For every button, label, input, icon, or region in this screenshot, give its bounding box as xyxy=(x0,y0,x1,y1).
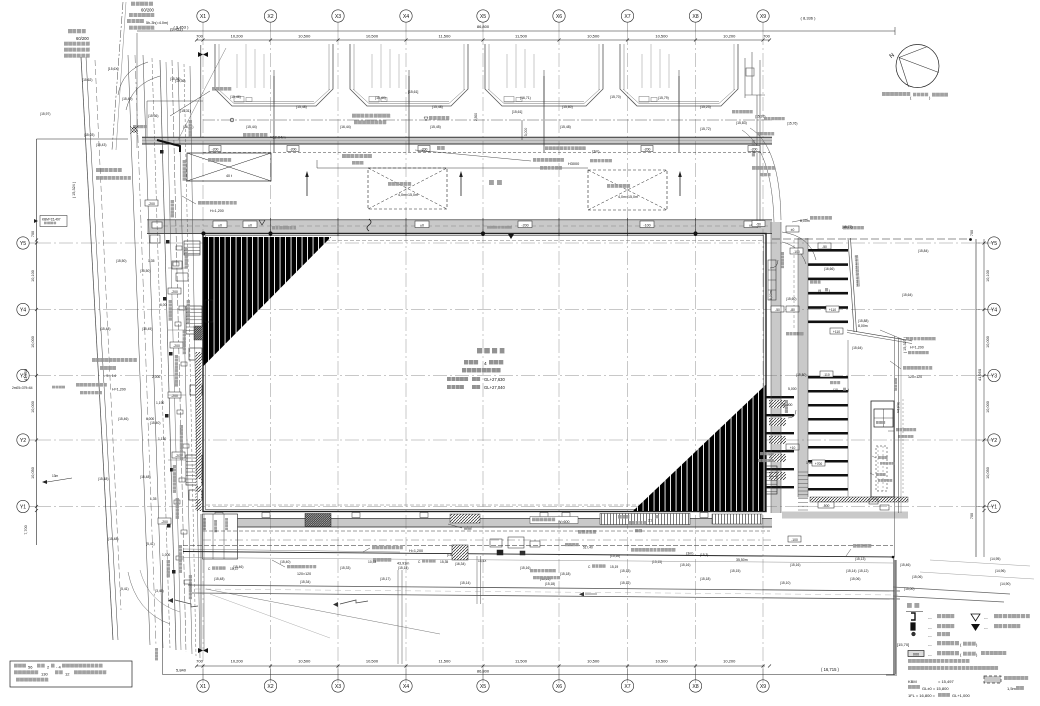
svg-text:- 4: - 4 xyxy=(56,665,61,670)
svg-text:10,500: 10,500 xyxy=(655,659,668,664)
svg-text:(15,80): (15,80) xyxy=(796,373,806,377)
svg-text:X6: X6 xyxy=(556,14,562,20)
svg-text:[15,6X]: [15,6X] xyxy=(108,67,119,71)
svg-text:(15,76): (15,76) xyxy=(787,122,797,126)
svg-text:(15,50): (15,50) xyxy=(140,269,150,273)
svg-text:(15,64): (15,64) xyxy=(852,346,862,350)
svg-text:5h-3h(=4.0m): 5h-3h(=4.0m) xyxy=(146,21,168,25)
svg-text:(15,48): (15,48) xyxy=(560,125,571,129)
svg-text:-500: -500 xyxy=(823,504,830,508)
svg-text:X9: X9 xyxy=(760,14,766,20)
svg-text:(16,71): (16,71) xyxy=(520,96,531,100)
svg-text:(15,15): (15,15) xyxy=(730,569,740,573)
svg-text:6,00: 6,00 xyxy=(160,303,167,307)
svg-text:(15,14): (15,14) xyxy=(398,566,408,570)
svg-text:10,500: 10,500 xyxy=(366,659,379,664)
svg-text:Y1: Y1 xyxy=(20,505,26,511)
svg-text:(15,43): (15,43) xyxy=(96,143,106,147)
svg-text:X3: X3 xyxy=(335,14,341,20)
svg-text:2,500: 2,500 xyxy=(474,113,478,121)
svg-text:43,91m: 43,91m xyxy=(397,562,409,566)
svg-text:120×120: 120×120 xyxy=(297,572,311,576)
svg-text:34,61m: 34,61m xyxy=(896,402,900,413)
svg-text:10,200: 10,200 xyxy=(723,659,736,664)
svg-text:2m05=379=64: 2m05=379=64 xyxy=(12,386,33,390)
svg-text:8,00m: 8,00m xyxy=(800,219,810,223)
svg-text:10,050: 10,050 xyxy=(986,467,990,479)
svg-text:X1: X1 xyxy=(200,684,206,690)
svg-text:(15,48): (15,48) xyxy=(98,477,108,481)
svg-text:41,950: 41,950 xyxy=(23,368,28,381)
svg-text:11,500: 11,500 xyxy=(439,34,452,39)
svg-text:H=1,200: H=1,200 xyxy=(210,209,224,213)
svg-text:( 16,715 ): ( 16,715 ) xyxy=(821,667,840,672)
svg-text:(3m): (3m) xyxy=(686,552,693,556)
svg-text:(15,14): (15,14) xyxy=(846,569,856,573)
svg-text:H3000: H3000 xyxy=(568,162,579,166)
svg-text:120×120: 120×120 xyxy=(908,375,922,379)
svg-text:W=600: W=600 xyxy=(558,520,570,524)
svg-text:(15,44): (15,44) xyxy=(246,125,257,129)
svg-text:10,53: 10,53 xyxy=(368,560,376,564)
svg-text:(15,40): (15,40) xyxy=(150,421,160,425)
svg-text:(15,48): (15,48) xyxy=(108,537,118,541)
svg-text:(15,03): (15,03) xyxy=(84,133,94,137)
svg-text:(15,70): (15,70) xyxy=(610,95,621,99)
svg-text:X5: X5 xyxy=(480,14,486,20)
svg-text:(15,46): (15,46) xyxy=(900,563,910,567)
svg-text:(15,00): (15,00) xyxy=(904,587,914,591)
svg-text:( 8,336 ): ( 8,336 ) xyxy=(801,16,817,21)
svg-text:±0: ±0 xyxy=(791,228,795,232)
svg-text:(15,18): (15,18) xyxy=(545,582,555,586)
svg-text:1,5m: 1,5m xyxy=(1007,686,1017,691)
svg-text:(16,34): (16,34) xyxy=(455,562,465,566)
svg-text:X9: X9 xyxy=(760,684,766,690)
svg-text:-200: -200 xyxy=(171,290,178,294)
svg-text:(5,41): (5,41) xyxy=(146,542,155,546)
svg-text:10,000: 10,000 xyxy=(31,336,35,348)
svg-text:700: 700 xyxy=(970,513,974,519)
svg-text:(15,60): (15,60) xyxy=(786,297,796,301)
svg-text:10,500: 10,500 xyxy=(366,34,379,39)
svg-text:H=1,200: H=1,200 xyxy=(910,346,924,350)
svg-text:(15,64): (15,64) xyxy=(902,293,912,297)
svg-text:-50: -50 xyxy=(756,222,761,226)
svg-text:-100: -100 xyxy=(791,538,798,542)
svg-text:10,100: 10,100 xyxy=(986,270,990,282)
svg-text:(15,88): (15,88) xyxy=(858,319,868,323)
svg-text:+10: +10 xyxy=(790,446,796,450)
svg-text:(15,33): (15,33) xyxy=(340,566,350,570)
svg-text:+110: +110 xyxy=(833,330,840,334)
svg-text:(15,31): (15,31) xyxy=(180,109,191,113)
svg-text:(15,17): (15,17) xyxy=(380,577,390,581)
svg-text:10,000: 10,000 xyxy=(31,401,35,413)
svg-text:(3,45): (3,45) xyxy=(155,589,164,593)
svg-text:X8: X8 xyxy=(692,684,698,690)
svg-text:(15,93): (15,93) xyxy=(755,115,765,119)
svg-text:Y5: Y5 xyxy=(991,241,997,247)
svg-text:12: 12 xyxy=(65,672,70,677)
svg-text:5,840: 5,840 xyxy=(176,668,187,673)
svg-text:700: 700 xyxy=(970,230,974,236)
svg-text:X4: X4 xyxy=(403,684,409,690)
svg-text:[15,61]: [15,61] xyxy=(512,110,522,114)
svg-text:±0: ±0 xyxy=(218,223,222,227)
svg-text:GL+27,040: GL+27,040 xyxy=(484,385,506,390)
svg-text:21: 21 xyxy=(648,519,652,523)
svg-text:X3: X3 xyxy=(335,684,341,690)
svg-text:(15,80): (15,80) xyxy=(562,105,573,109)
svg-text:4: 4 xyxy=(484,361,487,367)
svg-text:Y4: Y4 xyxy=(991,308,997,314)
svg-text:(15,18): (15,18) xyxy=(560,572,570,576)
svg-text:X5: X5 xyxy=(480,684,486,690)
svg-text:(9,453): (9,453) xyxy=(170,27,183,32)
svg-text:X6: X6 xyxy=(556,684,562,690)
svg-text:(15,46): (15,46) xyxy=(230,95,241,99)
svg-text:(15,77): (15,77) xyxy=(842,225,852,229)
svg-text:(15,12): (15,12) xyxy=(620,581,630,585)
svg-text:= 15,497: = 15,497 xyxy=(938,679,954,684)
svg-text:11,500: 11,500 xyxy=(439,659,452,664)
svg-text:(15,34): (15,34) xyxy=(300,580,310,584)
svg-text:1,130: 1,130 xyxy=(158,437,166,441)
svg-text:10,500: 10,500 xyxy=(298,34,311,39)
svg-text:6,000: 6,000 xyxy=(146,417,154,421)
svg-text:(15,83): (15,83) xyxy=(736,121,747,125)
svg-text:(15,62): (15,62) xyxy=(82,78,92,82)
svg-text:10,000: 10,000 xyxy=(986,401,990,413)
svg-text:60/200: 60/200 xyxy=(141,8,154,13)
svg-text:(15,46): (15,46) xyxy=(118,417,128,421)
svg-text:(15,23): (15,23) xyxy=(700,105,711,109)
svg-text:(14,96): (14,96) xyxy=(995,569,1005,573)
svg-text:700: 700 xyxy=(31,231,35,237)
svg-text:86,800: 86,800 xyxy=(477,24,490,29)
svg-text:4,0m×15,0m: 4,0m×15,0m xyxy=(398,193,418,197)
svg-text:(15,13): (15,13) xyxy=(620,569,630,573)
svg-text:(15,36): (15,36) xyxy=(148,114,158,118)
svg-text:1,190: 1,190 xyxy=(156,401,164,405)
svg-text:±0: ±0 xyxy=(248,223,252,227)
svg-text:(3m): (3m) xyxy=(592,150,599,154)
svg-text:-200: -200 xyxy=(290,147,297,151)
svg-text:(5,41): (5,41) xyxy=(120,587,129,591)
svg-text:GL+1,000: GL+1,000 xyxy=(952,693,970,698)
svg-text:(15,48): (15,48) xyxy=(214,577,224,581)
svg-text:3,000: 3,000 xyxy=(524,128,528,137)
svg-text:-200: -200 xyxy=(148,202,155,206)
svg-text:31,000: 31,000 xyxy=(782,403,792,407)
svg-text:-100: -100 xyxy=(643,223,650,227)
svg-text:15,19: 15,19 xyxy=(610,565,618,569)
svg-text:(15,18): (15,18) xyxy=(700,577,710,581)
svg-text:-50: -50 xyxy=(822,245,827,249)
svg-text:+110: +110 xyxy=(829,308,836,312)
svg-text:(15,14): (15,14) xyxy=(460,581,470,585)
svg-text:H=1,200: H=1,200 xyxy=(409,549,423,553)
svg-text:-200: -200 xyxy=(171,394,178,398)
svg-text:10,200: 10,200 xyxy=(231,659,244,664)
svg-text:(15,40): (15,40) xyxy=(280,560,290,564)
svg-text:(14,95): (14,95) xyxy=(990,557,1000,561)
svg-text:X1: X1 xyxy=(200,14,206,20)
svg-text:-200: -200 xyxy=(173,344,180,348)
svg-text:(15,79): (15,79) xyxy=(658,96,669,100)
svg-text:(15,06): (15,06) xyxy=(850,577,860,581)
svg-text:Y2: Y2 xyxy=(991,438,997,444)
svg-text:60/200: 60/200 xyxy=(76,36,89,41)
svg-text:X2: X2 xyxy=(267,14,273,20)
svg-text:GL±0 = 15,800: GL±0 = 15,800 xyxy=(922,686,949,691)
svg-text:11,500: 11,500 xyxy=(515,659,528,664)
svg-text:2,000: 2,000 xyxy=(152,375,160,379)
svg-text:(15,84): (15,84) xyxy=(918,249,928,253)
svg-text:X7: X7 xyxy=(624,14,630,20)
svg-text:000: 000 xyxy=(913,653,919,657)
svg-text:-200: -200 xyxy=(212,147,219,151)
svg-text:11,500: 11,500 xyxy=(515,34,528,39)
svg-text:H=1,200: H=1,200 xyxy=(112,388,126,392)
svg-text:-50: -50 xyxy=(775,308,780,312)
svg-text:10,050: 10,050 xyxy=(31,467,35,479)
svg-text:KBM: KBM xyxy=(908,679,917,684)
svg-text:(15,06): (15,06) xyxy=(912,575,922,579)
svg-text:(15,46): (15,46) xyxy=(233,565,243,569)
svg-text:51?,40: 51?,40 xyxy=(583,546,593,550)
svg-text:X8: X8 xyxy=(692,14,698,20)
svg-text:GL+27,630: GL+27,630 xyxy=(484,377,506,382)
svg-text:Y1: Y1 xyxy=(991,505,997,511)
svg-text:130: 130 xyxy=(41,672,48,677)
svg-text:10,200: 10,200 xyxy=(723,34,736,39)
svg-text:Y5: Y5 xyxy=(20,241,26,247)
svg-text:10,500: 10,500 xyxy=(587,659,600,664)
svg-text:( 15,324 ): ( 15,324 ) xyxy=(72,181,76,198)
svg-text:700: 700 xyxy=(196,34,203,39)
svg-text:15,35: 15,35 xyxy=(440,560,448,564)
svg-text:): ) xyxy=(829,289,830,293)
svg-text:(15,48): (15,48) xyxy=(140,475,150,479)
svg-text:13m: 13m xyxy=(52,474,59,478)
svg-text:(14,90): (14,90) xyxy=(1000,582,1010,586)
svg-text:40 t: 40 t xyxy=(226,174,232,178)
svg-text:Y2: Y2 xyxy=(20,438,26,444)
svg-text:-200: -200 xyxy=(644,147,651,151)
svg-text:700: 700 xyxy=(196,659,203,664)
svg-text:1,35: 1,35 xyxy=(150,497,157,501)
svg-text:(15,12): (15,12) xyxy=(858,569,868,573)
svg-text:X2: X2 xyxy=(267,684,273,690)
svg-text:X4: X4 xyxy=(403,14,409,20)
svg-text:1FL = 16,800 =: 1FL = 16,800 = xyxy=(908,693,936,698)
svg-text:(15,48): (15,48) xyxy=(432,105,443,109)
svg-text:Y3: Y3 xyxy=(991,374,997,380)
svg-text:-80: -80 xyxy=(790,308,795,312)
svg-text:7,700: 7,700 xyxy=(24,525,28,535)
svg-text:(15,48): (15,48) xyxy=(100,327,110,331)
svg-text:(15,15): (15,15) xyxy=(652,560,662,564)
svg-text:(15,36): (15,36) xyxy=(175,79,185,83)
svg-text:35,50m: 35,50m xyxy=(736,558,748,562)
svg-text:(15,3): (15,3) xyxy=(700,553,708,557)
svg-text:1,35: 1,35 xyxy=(148,259,155,263)
svg-text:10,500: 10,500 xyxy=(298,659,311,664)
svg-text:-200: -200 xyxy=(751,147,758,151)
svg-text:[15,61]: [15,61] xyxy=(408,90,418,94)
svg-text:(15,72): (15,72) xyxy=(700,127,711,131)
svg-text:(15,97): (15,97) xyxy=(40,112,50,116)
svg-text:(10: (10 xyxy=(833,388,838,392)
svg-text:1,000: 1,000 xyxy=(162,553,170,557)
svg-text:10,200: 10,200 xyxy=(231,34,244,39)
svg-text:(15,45): (15,45) xyxy=(430,125,441,129)
svg-text:-200: -200 xyxy=(521,223,528,227)
svg-text:(16,44): (16,44) xyxy=(340,125,351,129)
svg-text:(15,50): (15,50) xyxy=(116,259,126,263)
svg-text:(15,40): (15,40) xyxy=(122,97,132,101)
svg-text:41,950: 41,950 xyxy=(977,368,982,381)
svg-text:700: 700 xyxy=(763,34,770,39)
svg-text:-100: -100 xyxy=(793,250,800,254)
svg-text:±0: ±0 xyxy=(420,223,424,227)
svg-text:(15,48): (15,48) xyxy=(296,105,307,109)
svg-text:56: 56 xyxy=(28,665,33,670)
svg-text:KBM=15,497: KBM=15,497 xyxy=(42,218,61,222)
svg-text:(9: (9 xyxy=(818,289,821,293)
svg-text:- 5 - 14: - 5 - 14 xyxy=(104,374,116,378)
svg-text:(15,16): (15,16) xyxy=(680,563,690,567)
svg-text:4,0m×15,0m: 4,0m×15,0m xyxy=(618,195,638,199)
svg-text:X7: X7 xyxy=(624,684,630,690)
svg-text:86,800: 86,800 xyxy=(477,669,490,674)
svg-text:(15,45): (15,45) xyxy=(142,327,152,331)
svg-text:(16,66): (16,66) xyxy=(824,267,834,271)
svg-text:10,500: 10,500 xyxy=(587,34,600,39)
svg-text:+700: +700 xyxy=(815,462,823,466)
svg-text:(15,16): (15,16) xyxy=(610,554,620,558)
svg-text:10,100: 10,100 xyxy=(31,270,35,282)
svg-text:10,000: 10,000 xyxy=(986,336,990,348)
svg-text:[15,70]: [15,70] xyxy=(897,642,909,647)
svg-text:8,00m: 8,00m xyxy=(858,324,868,328)
svg-text:(15,44): (15,44) xyxy=(375,96,386,100)
svg-text:-200: -200 xyxy=(161,520,168,524)
svg-text:10,500: 10,500 xyxy=(655,34,668,39)
svg-text:(15,13): (15,13) xyxy=(855,557,865,561)
svg-text:(15,16): (15,16) xyxy=(520,566,530,570)
svg-text:(15,16): (15,16) xyxy=(790,563,800,567)
svg-text:-110: -110 xyxy=(823,373,830,377)
svg-text:5,000: 5,000 xyxy=(788,387,797,391)
svg-text:Y4: Y4 xyxy=(20,308,26,314)
svg-text:(15,10): (15,10) xyxy=(780,581,790,585)
